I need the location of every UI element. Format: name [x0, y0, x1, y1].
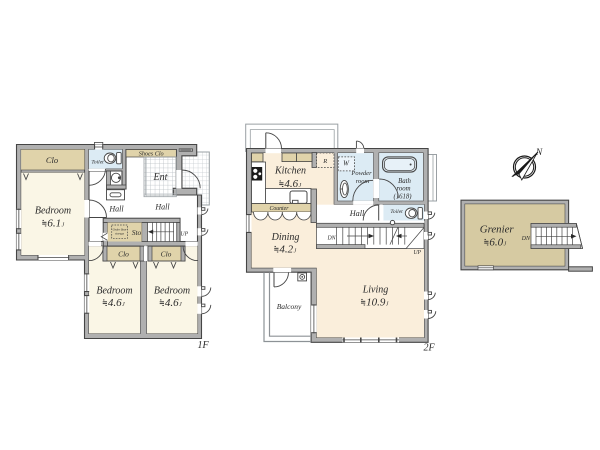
svg-text:Hall: Hall: [108, 205, 124, 214]
svg-text:Clo: Clo: [46, 155, 58, 165]
svg-text:6.0: 6.0: [489, 237, 503, 249]
svg-text:(1618): (1618): [393, 193, 412, 200]
svg-text:Toilet: Toilet: [91, 160, 104, 166]
svg-text:Bath: Bath: [398, 178, 411, 185]
svg-text:J: J: [179, 302, 182, 308]
svg-text:DN: DN: [326, 235, 336, 241]
svg-text:storage: storage: [115, 232, 125, 236]
svg-text:J: J: [122, 302, 125, 308]
svg-text:J: J: [62, 223, 65, 229]
svg-text:room: room: [396, 186, 410, 193]
svg-text:Powder: Powder: [350, 170, 372, 177]
svg-text:Grenier: Grenier: [480, 224, 515, 236]
svg-text:Balcony: Balcony: [277, 302, 302, 311]
svg-text:4.6: 4.6: [108, 297, 122, 309]
svg-text:Clo: Clo: [161, 250, 172, 259]
svg-text:R: R: [322, 158, 327, 165]
svg-text:Bedroom: Bedroom: [35, 206, 71, 217]
svg-text:DN: DN: [521, 236, 531, 242]
svg-text:N: N: [535, 148, 543, 158]
svg-text:Dining: Dining: [271, 232, 300, 243]
svg-text:6.1: 6.1: [47, 218, 61, 230]
svg-text:Hall: Hall: [154, 203, 170, 212]
svg-text:UP: UP: [413, 250, 421, 256]
svg-text:2F: 2F: [423, 343, 435, 354]
svg-text:Toilet: Toilet: [390, 209, 403, 215]
svg-text:Ent: Ent: [153, 172, 168, 183]
svg-text:Clo: Clo: [118, 250, 129, 259]
svg-text:Bedroom: Bedroom: [154, 286, 190, 297]
svg-text:Sto: Sto: [132, 228, 142, 237]
svg-text:Hall: Hall: [349, 209, 365, 218]
svg-text:Kitchen: Kitchen: [274, 166, 306, 177]
svg-text:10.9: 10.9: [366, 297, 386, 309]
svg-text:Bedroom: Bedroom: [96, 286, 132, 297]
svg-text:J: J: [294, 249, 297, 255]
svg-text:4.2: 4.2: [279, 244, 293, 256]
svg-text:J: J: [504, 242, 507, 248]
svg-text:1F: 1F: [197, 340, 209, 351]
svg-text:UP: UP: [180, 232, 188, 238]
svg-text:Living: Living: [362, 285, 389, 296]
svg-text:4.6: 4.6: [165, 297, 179, 309]
svg-text:Counter: Counter: [269, 206, 289, 212]
svg-text:J: J: [386, 302, 389, 308]
svg-text:4.6: 4.6: [284, 178, 298, 190]
svg-text:Shoes Clo: Shoes Clo: [139, 151, 164, 158]
svg-text:J: J: [299, 183, 302, 189]
